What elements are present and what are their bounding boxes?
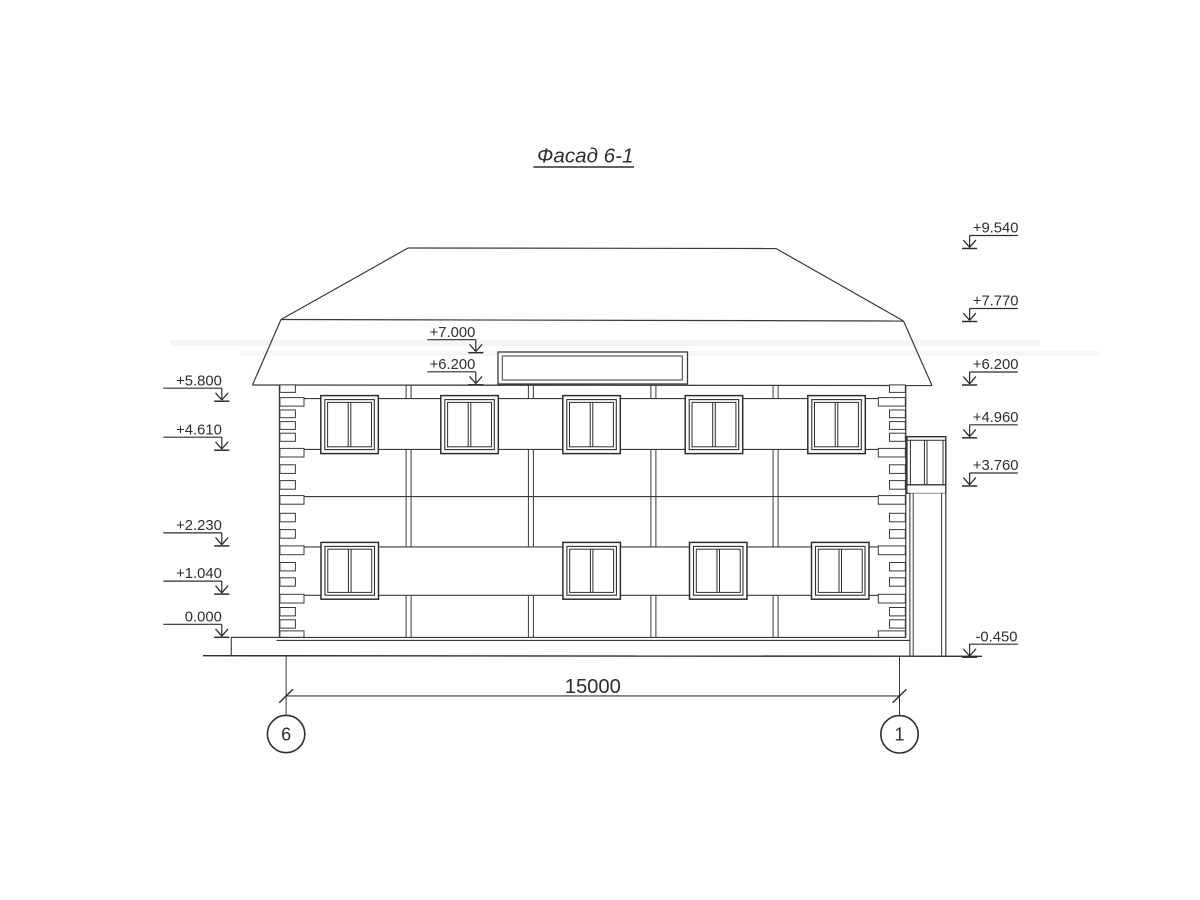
svg-text:+4.610: +4.610 (176, 422, 222, 438)
svg-text:-0.450: -0.450 (976, 629, 1018, 645)
svg-text:+9.540: +9.540 (973, 221, 1019, 237)
svg-text:15000: 15000 (565, 676, 621, 698)
svg-text:1: 1 (894, 725, 904, 745)
svg-text:Фасад 6-1: Фасад 6-1 (537, 145, 633, 168)
svg-text:+3.760: +3.760 (973, 458, 1019, 474)
svg-text:+5.800: +5.800 (176, 373, 222, 389)
svg-text:0.000: 0.000 (185, 609, 222, 625)
svg-text:+7.770: +7.770 (973, 294, 1019, 310)
svg-text:+4.960: +4.960 (973, 410, 1019, 426)
svg-text:+7.000: +7.000 (430, 325, 476, 341)
svg-text:+2.230: +2.230 (176, 518, 222, 534)
svg-text:+6.200: +6.200 (973, 357, 1019, 373)
svg-text:+1.040: +1.040 (176, 566, 222, 582)
svg-text:6: 6 (281, 724, 291, 744)
svg-text:+6.200: +6.200 (430, 357, 476, 373)
